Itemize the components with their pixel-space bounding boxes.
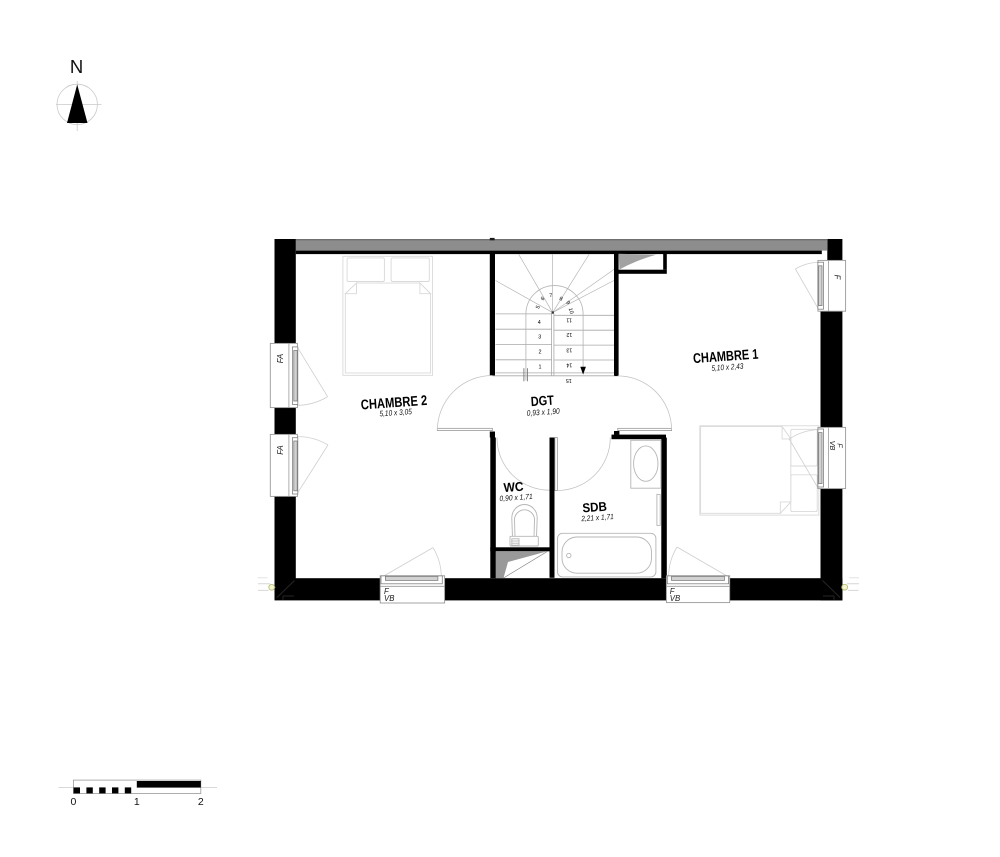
svg-text:2: 2 xyxy=(539,349,542,355)
svg-text:14: 14 xyxy=(566,362,572,368)
svg-text:FA: FA xyxy=(276,445,285,454)
svg-text:VB: VB xyxy=(670,594,680,603)
svg-text:12: 12 xyxy=(566,331,572,337)
svg-text:11: 11 xyxy=(566,316,572,322)
svg-text:VB: VB xyxy=(828,441,837,451)
svg-text:0: 0 xyxy=(70,796,76,808)
svg-text:VB: VB xyxy=(384,594,394,603)
svg-text:N: N xyxy=(70,56,83,77)
svg-text:13: 13 xyxy=(566,346,572,352)
svg-text:1: 1 xyxy=(539,365,542,371)
svg-text:4: 4 xyxy=(538,320,541,326)
svg-text:2: 2 xyxy=(198,796,204,808)
svg-text:FA: FA xyxy=(276,354,285,363)
svg-text:15: 15 xyxy=(566,377,572,383)
svg-text:1: 1 xyxy=(134,796,140,808)
svg-text:3: 3 xyxy=(538,335,541,341)
